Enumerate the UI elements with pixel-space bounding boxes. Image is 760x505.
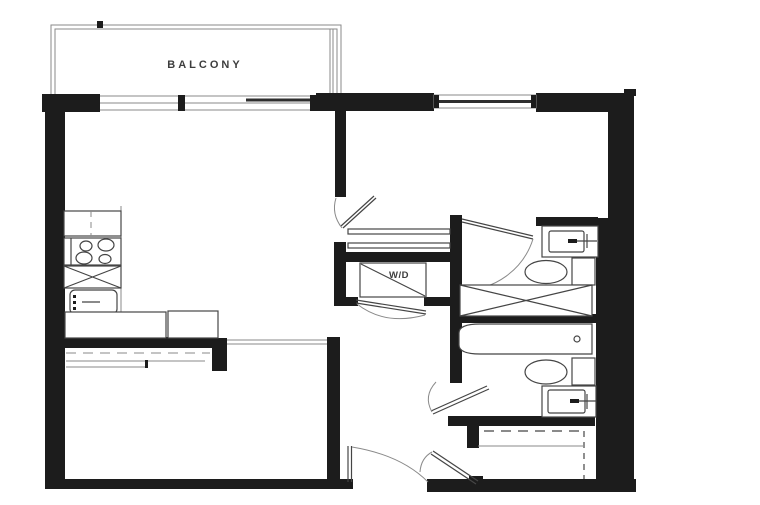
toilet-bowl	[525, 261, 567, 284]
bedroom-window	[434, 95, 536, 108]
window-mullion	[178, 95, 185, 111]
door-swing-arc	[428, 382, 436, 412]
balcony-label: BALCONY	[167, 59, 242, 71]
door-swing-arc	[462, 239, 533, 290]
closet-sliding-door	[348, 229, 450, 234]
kitchen-halfwall-cap	[212, 338, 227, 371]
wall-bottom-right	[427, 479, 636, 492]
bathtub	[459, 324, 592, 354]
wall-ensuite-top	[536, 217, 598, 226]
counter-lower	[65, 312, 166, 338]
burner	[76, 252, 92, 264]
closet-door-swing-arc	[420, 452, 432, 472]
entry-door-swing-arc	[352, 447, 428, 482]
sink-knob	[73, 307, 76, 310]
fridge	[64, 211, 121, 236]
toilet-tank	[572, 358, 595, 385]
wall-stub	[467, 426, 479, 448]
closet-door-leaf	[433, 451, 478, 481]
wall-top-middle	[316, 93, 434, 111]
door-leaf	[462, 219, 533, 236]
wall-wd-stub-left	[334, 297, 358, 306]
window-mullion	[531, 95, 536, 108]
wall-bottom-left	[45, 479, 353, 489]
toilet-tank	[572, 258, 595, 285]
window-mullion	[434, 95, 439, 108]
door-leaf	[341, 196, 374, 226]
bedroom-door	[334, 196, 376, 228]
door-leaf	[356, 300, 426, 311]
counter-peninsula	[168, 311, 218, 338]
balcony-sliding-door	[100, 95, 317, 111]
door-leaf	[343, 198, 376, 228]
kitchen-halfwall	[63, 337, 215, 348]
washer-dryer-label: W/D	[389, 270, 409, 281]
ensuite-bathroom	[462, 219, 598, 290]
faucet-handle	[570, 399, 579, 403]
wall-living-hall	[327, 337, 340, 483]
wall-right-lower	[596, 218, 634, 492]
entry	[348, 431, 584, 484]
sink-knob	[73, 295, 76, 298]
wall-left	[45, 94, 65, 486]
floor-plan: BALCONY	[0, 0, 760, 505]
door-leaf	[356, 303, 426, 314]
wall-right-upper	[608, 93, 634, 219]
toilet-bowl	[525, 360, 567, 384]
burner	[80, 241, 92, 251]
floor-plan-drawing: BALCONY	[0, 0, 760, 505]
linen-closet	[460, 285, 592, 316]
window-mullion	[310, 95, 317, 111]
wall-wd-separator	[346, 252, 462, 262]
faucet-handle	[568, 239, 577, 243]
door-leaf	[433, 389, 489, 414]
burner	[99, 255, 111, 264]
balcony: BALCONY	[51, 21, 341, 97]
door-swing-arc	[357, 304, 425, 319]
wall-wd-left	[334, 242, 346, 306]
railing-post	[97, 21, 103, 28]
door-leaf	[431, 386, 487, 411]
burner	[98, 239, 114, 251]
closet-sliding-door	[348, 243, 450, 248]
bar-end-tick	[145, 360, 148, 368]
door-leaf	[462, 222, 533, 239]
door-swing-arc	[334, 198, 342, 228]
sink-knob	[73, 301, 76, 304]
wall-bedroom-living	[335, 107, 346, 197]
